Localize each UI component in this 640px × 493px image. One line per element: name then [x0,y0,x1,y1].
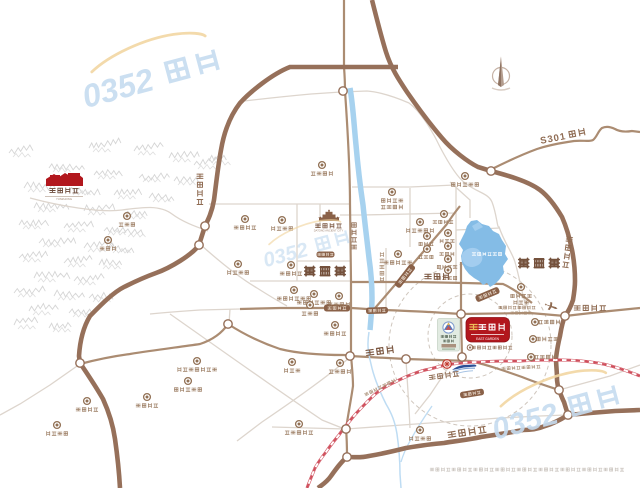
svg-text:YUNZHONG: YUNZHONG [56,197,72,201]
svg-text:0352: 0352 [78,61,157,114]
svg-text:DATONG ANCIENT CITY: DATONG ANCIENT CITY [314,229,344,233]
svg-text:EAST GARDEN: EAST GARDEN [476,337,499,341]
svg-text:S301: S301 [539,131,567,147]
svg-text:0352: 0352 [489,397,562,446]
